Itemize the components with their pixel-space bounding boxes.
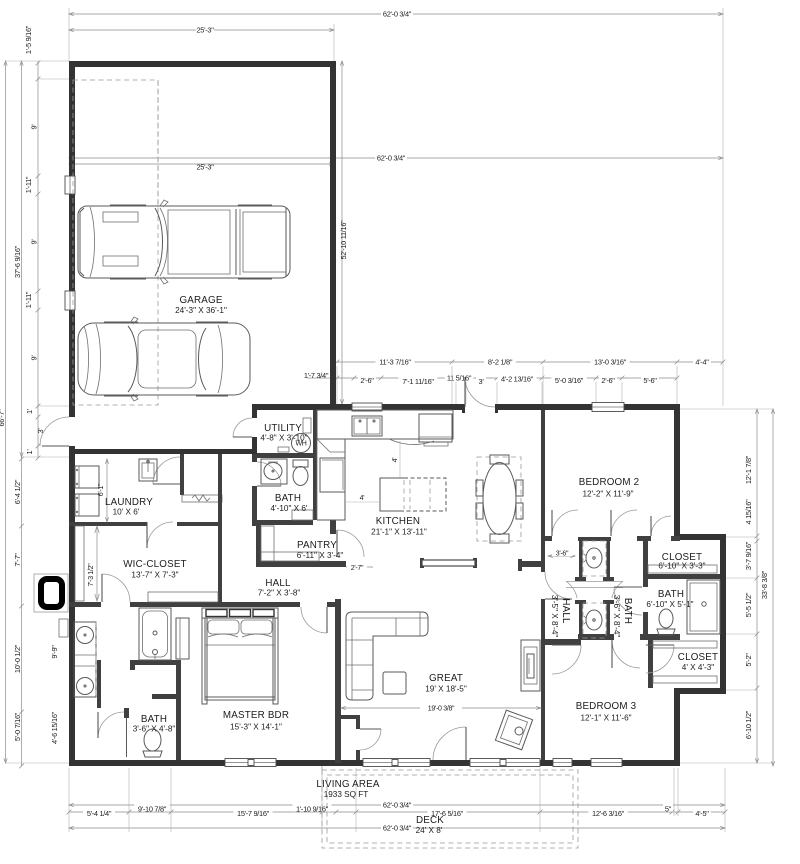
svg-text:WIC-CLOSET: WIC-CLOSET — [123, 559, 187, 570]
svg-text:1'-5 9/16": 1'-5 9/16" — [24, 25, 33, 54]
svg-text:19' X 18'-5": 19' X 18'-5" — [425, 685, 467, 694]
svg-text:62'-0 3/4": 62'-0 3/4" — [383, 10, 412, 19]
svg-text:3'-6" X 8'-4": 3'-6" X 8'-4" — [612, 595, 621, 638]
svg-text:24' X 8': 24' X 8' — [416, 826, 443, 835]
svg-text:6'-10 1/2": 6'-10 1/2" — [744, 710, 753, 739]
svg-text:62'-0 3/4": 62'-0 3/4" — [383, 801, 412, 810]
svg-text:6'-11" X 3'-4": 6'-11" X 3'-4" — [297, 551, 344, 560]
svg-text:GARAGE: GARAGE — [179, 295, 222, 306]
svg-text:2'-7": 2'-7" — [351, 565, 364, 572]
svg-text:7'-2" X 3'-8": 7'-2" X 3'-8" — [258, 589, 301, 598]
svg-text:CLOSET: CLOSET — [678, 652, 718, 663]
svg-text:15'-7 9/16": 15'-7 9/16" — [237, 809, 270, 818]
svg-text:62'-0 3/4": 62'-0 3/4" — [377, 154, 406, 163]
svg-text:9'-9": 9'-9" — [50, 645, 59, 659]
svg-text:1'-7 3/4": 1'-7 3/4" — [304, 371, 329, 380]
svg-text:25'-3": 25'-3" — [196, 26, 214, 35]
svg-text:12'-1 7/8": 12'-1 7/8" — [744, 455, 753, 484]
svg-text:21'-1" X 13'-11": 21'-1" X 13'-11" — [371, 528, 427, 537]
svg-text:66'-7": 66'-7" — [0, 409, 6, 427]
svg-text:7'-7": 7'-7" — [13, 553, 22, 567]
svg-text:5'-4 1/4": 5'-4 1/4" — [87, 809, 112, 818]
svg-text:13'-7" X 7'-3": 13'-7" X 7'-3" — [131, 571, 178, 580]
svg-text:BEDROOM 2: BEDROOM 2 — [579, 477, 640, 488]
svg-text:12'-6 3/16": 12'-6 3/16" — [592, 809, 625, 818]
svg-text:7'-1 11/16": 7'-1 11/16" — [402, 377, 434, 386]
svg-text:12'-1" X 11'-6": 12'-1" X 11'-6" — [580, 714, 631, 723]
svg-text:BATH: BATH — [141, 714, 167, 725]
svg-text:4': 4' — [360, 495, 365, 502]
svg-text:4 15/16": 4 15/16" — [744, 499, 753, 525]
svg-text:4'-6 15/16": 4'-6 15/16" — [50, 711, 59, 744]
svg-text:BATH: BATH — [622, 598, 633, 624]
svg-text:LIVING AREA: LIVING AREA — [316, 779, 379, 790]
svg-text:5'-6": 5'-6" — [643, 376, 657, 385]
svg-text:UTILITY: UTILITY — [264, 423, 302, 434]
svg-text:1'-11": 1'-11" — [24, 176, 33, 193]
svg-text:PANTRY: PANTRY — [297, 540, 337, 551]
svg-text:1'-11": 1'-11" — [24, 291, 33, 308]
svg-text:4'-2 13/16": 4'-2 13/16" — [501, 375, 534, 384]
svg-text:BEDROOM 3: BEDROOM 3 — [576, 701, 637, 712]
svg-text:3'-6": 3'-6" — [556, 551, 569, 558]
svg-text:4'-10" X 6': 4'-10" X 6' — [271, 504, 308, 513]
svg-text:52'-10 11/16": 52'-10 11/16" — [339, 220, 348, 260]
svg-text:KITCHEN: KITCHEN — [376, 516, 420, 527]
svg-text:7'-3 1/2": 7'-3 1/2" — [88, 563, 95, 587]
svg-text:HALL: HALL — [560, 598, 571, 624]
svg-text:4'-8" X 3'-10": 4'-8" X 3'-10" — [260, 434, 307, 443]
svg-text:11 5/16": 11 5/16" — [447, 374, 472, 383]
svg-text:6'-4 1/2": 6'-4 1/2" — [13, 479, 22, 504]
svg-text:3'-6" X 4'-8": 3'-6" X 4'-8" — [133, 725, 176, 734]
svg-text:3'-5" X 8'-4": 3'-5" X 8'-4" — [550, 595, 559, 638]
svg-text:13'-0 3/16": 13'-0 3/16" — [594, 358, 627, 367]
svg-text:62'-0 3/4": 62'-0 3/4" — [383, 824, 412, 833]
svg-text:4'-5": 4'-5" — [695, 809, 709, 818]
svg-text:5'-2": 5'-2" — [744, 653, 753, 667]
svg-text:4' X 4'-3": 4' X 4'-3" — [682, 663, 715, 672]
svg-text:9'-10 7/8": 9'-10 7/8" — [138, 805, 167, 814]
svg-text:8'-2 1/8": 8'-2 1/8" — [488, 358, 513, 367]
svg-text:DECK: DECK — [416, 815, 444, 826]
svg-text:1933 SQ FT: 1933 SQ FT — [324, 790, 369, 799]
svg-text:19'-0 3/8": 19'-0 3/8" — [428, 706, 455, 713]
svg-text:BATH: BATH — [658, 589, 684, 600]
svg-text:LAUNDRY: LAUNDRY — [105, 497, 153, 508]
svg-text:1'-10 9/16": 1'-10 9/16" — [296, 805, 329, 814]
svg-text:24'-3" X 36'-1": 24'-3" X 36'-1" — [175, 306, 227, 315]
svg-text:GREAT: GREAT — [429, 673, 463, 684]
svg-text:25'-3": 25'-3" — [196, 163, 214, 172]
svg-text:2'-6": 2'-6" — [360, 376, 374, 385]
svg-text:37'-6 9/16": 37'-6 9/16" — [13, 245, 22, 278]
svg-text:4'-4": 4'-4" — [695, 358, 709, 367]
svg-text:3'-7 9/16": 3'-7 9/16" — [744, 541, 753, 570]
svg-text:5'-0 7/16": 5'-0 7/16" — [13, 712, 22, 741]
svg-text:5": 5" — [665, 805, 672, 814]
svg-text:12'-2" X 11'-9": 12'-2" X 11'-9" — [582, 490, 633, 499]
svg-text:33'-8 3/8": 33'-8 3/8" — [760, 570, 769, 599]
svg-text:10' X 6': 10' X 6' — [113, 508, 140, 517]
svg-text:15'-3" X 14'-1": 15'-3" X 14'-1" — [230, 723, 282, 732]
svg-text:11'-3 7/16": 11'-3 7/16" — [379, 358, 411, 367]
svg-text:4': 4' — [392, 458, 399, 463]
svg-text:6'-10" X 3'-3": 6'-10" X 3'-3" — [658, 562, 705, 571]
svg-text:10'-0 1/2": 10'-0 1/2" — [13, 644, 22, 673]
svg-text:6'-10" X 5'-1": 6'-10" X 5'-1" — [646, 600, 693, 609]
svg-text:5'-5 1/2": 5'-5 1/2" — [744, 592, 753, 617]
svg-text:HALL: HALL — [265, 578, 291, 589]
svg-text:2'-6": 2'-6" — [601, 376, 615, 385]
svg-text:MASTER BDR: MASTER BDR — [223, 710, 289, 721]
svg-text:BATH: BATH — [275, 493, 301, 504]
svg-text:6'-1": 6'-1" — [98, 483, 105, 496]
svg-text:5'-0 3/16": 5'-0 3/16" — [555, 376, 584, 385]
